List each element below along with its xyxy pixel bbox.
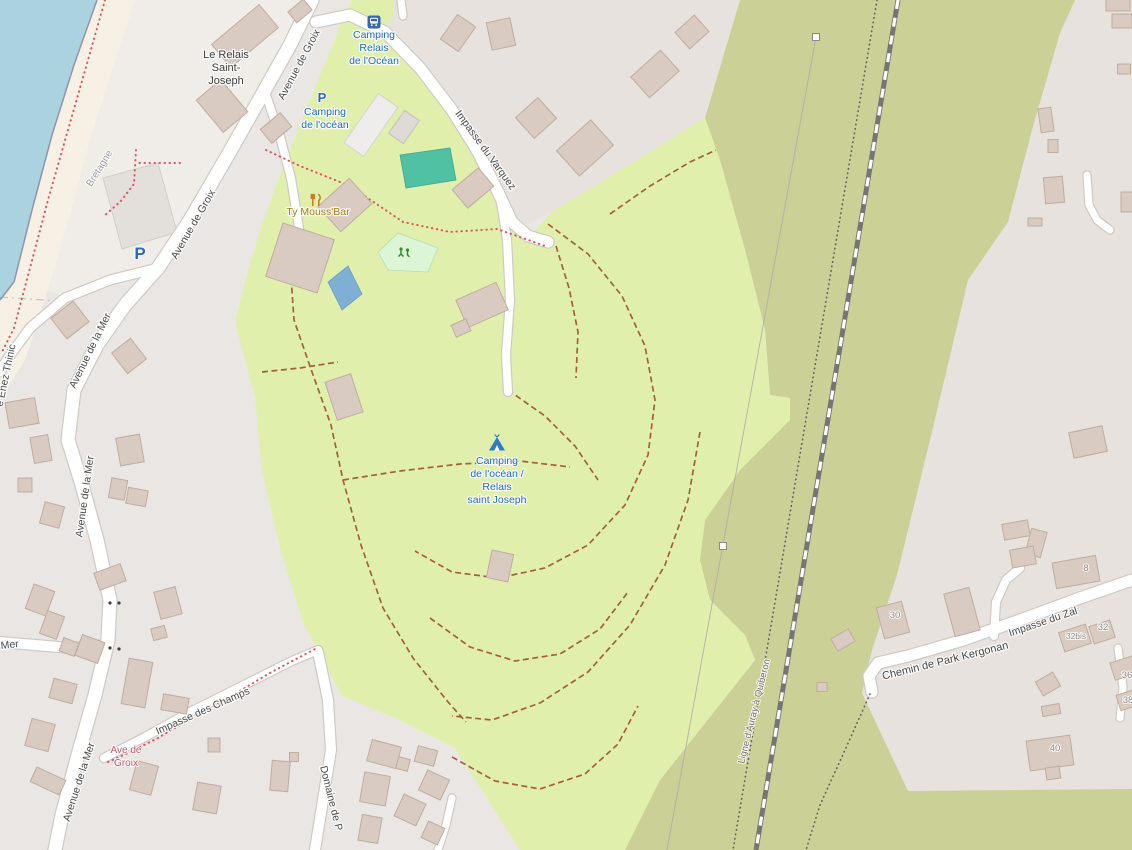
- map-viewport[interactable]: Avenue de GroixAvenue de GroixAvenue de …: [0, 0, 1132, 850]
- building: [1106, 0, 1130, 11]
- building: [5, 398, 39, 429]
- road-marker-dot: [108, 601, 111, 604]
- building: [193, 782, 221, 814]
- road-marker-dot: [117, 601, 120, 604]
- power-pole-icon: [720, 543, 727, 550]
- parking-icon: P: [318, 90, 327, 105]
- building: [486, 18, 515, 50]
- poi-label: Ty Mouss'Bar: [286, 206, 350, 218]
- building: [18, 478, 32, 492]
- building: [108, 478, 127, 500]
- road-marker-dot: [117, 647, 120, 650]
- osm-map-canvas[interactable]: Avenue de GroixAvenue de GroixAvenue de …: [0, 0, 1132, 850]
- building: [1010, 546, 1037, 568]
- building: [817, 683, 827, 692]
- building: [1112, 14, 1132, 28]
- house-number: 38: [1123, 695, 1132, 706]
- building: [1038, 107, 1054, 133]
- building: [360, 772, 391, 806]
- building: [1028, 218, 1042, 226]
- scrub-band-se: [908, 790, 1132, 850]
- poi-label: Campingde l'océan: [301, 106, 349, 131]
- house-number: 40: [1050, 743, 1061, 754]
- road: [401, 0, 403, 16]
- house-number: 30: [890, 610, 901, 621]
- road-marker-dot: [108, 646, 111, 649]
- building: [1043, 176, 1064, 204]
- building: [270, 760, 291, 791]
- street-label: Mer: [0, 638, 20, 652]
- building: [1045, 766, 1061, 780]
- house-number: 32bis: [1066, 631, 1086, 641]
- house-number: 8: [1083, 563, 1088, 574]
- bus-stop-icon: [368, 16, 381, 29]
- building: [290, 753, 299, 762]
- building: [208, 738, 220, 752]
- building: [116, 434, 144, 466]
- building: [358, 814, 382, 843]
- building: [1118, 64, 1131, 74]
- parking-icon: P: [134, 244, 145, 263]
- building: [126, 487, 148, 506]
- building: [1121, 192, 1132, 212]
- building: [30, 435, 52, 464]
- house-number: 36: [1122, 670, 1132, 681]
- house-number: 32: [1098, 622, 1109, 633]
- building: [396, 757, 411, 772]
- building: [1048, 140, 1058, 153]
- power-pole-icon: [813, 34, 820, 41]
